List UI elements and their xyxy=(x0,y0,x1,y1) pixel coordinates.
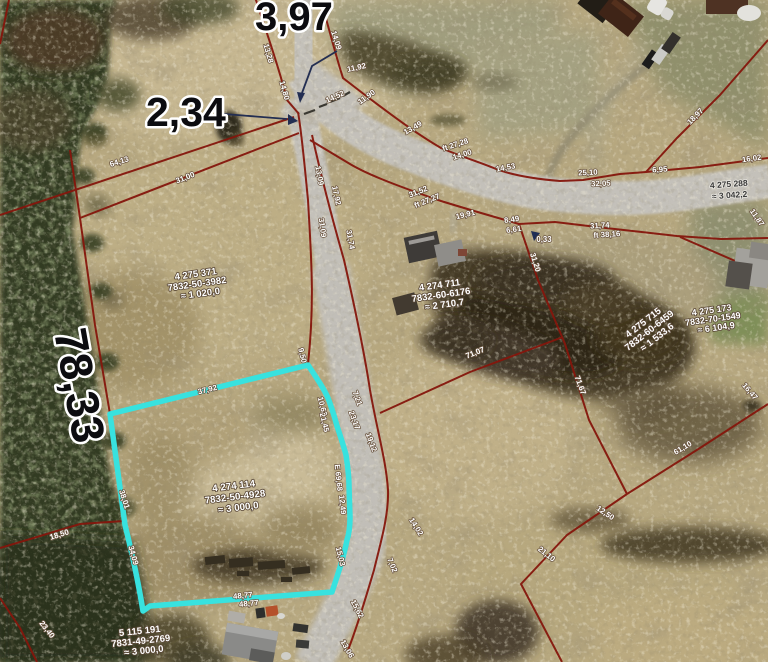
svg-text:2,34: 2,34 xyxy=(146,89,226,135)
svg-text:0,33: 0,33 xyxy=(536,235,552,244)
svg-text:32,05: 32,05 xyxy=(591,178,612,188)
svg-text:6,95: 6,95 xyxy=(652,164,668,174)
svg-text:25,10: 25,10 xyxy=(578,167,599,177)
svg-text:ft 38,16: ft 38,16 xyxy=(593,229,621,240)
svg-text:3,97: 3,97 xyxy=(255,0,333,39)
svg-text:48,77: 48,77 xyxy=(239,598,259,609)
